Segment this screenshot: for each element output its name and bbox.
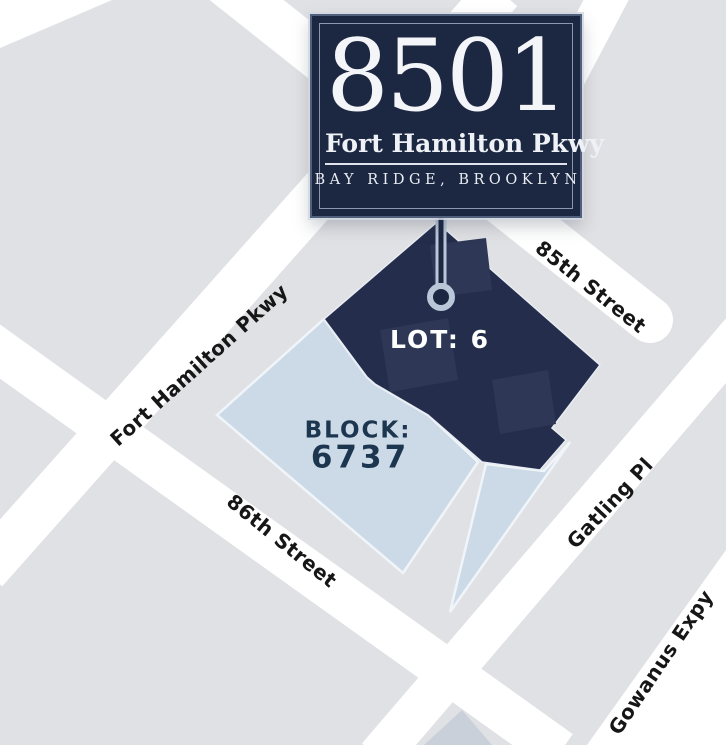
- property-map-graphic: LOT: 6 BLOCK: 6737 85th Street Fort Hami…: [0, 0, 726, 745]
- lot-number-label: LOT: 6: [390, 325, 490, 354]
- house-number: 8501: [326, 24, 566, 130]
- street-name: Fort Hamilton Pkwy: [325, 130, 567, 165]
- location-marker-icon: [430, 286, 452, 308]
- neighborhood-borough: BAY RIDGE, BROOKLYN: [310, 165, 581, 195]
- building-footprint: [492, 370, 556, 434]
- address-callout-sign: 8501 Fort Hamilton Pkwy BAY RIDGE, BROOK…: [310, 14, 582, 218]
- callout-inner-frame: 8501 Fort Hamilton Pkwy BAY RIDGE, BROOK…: [319, 23, 573, 209]
- block-number: 6737: [311, 440, 409, 476]
